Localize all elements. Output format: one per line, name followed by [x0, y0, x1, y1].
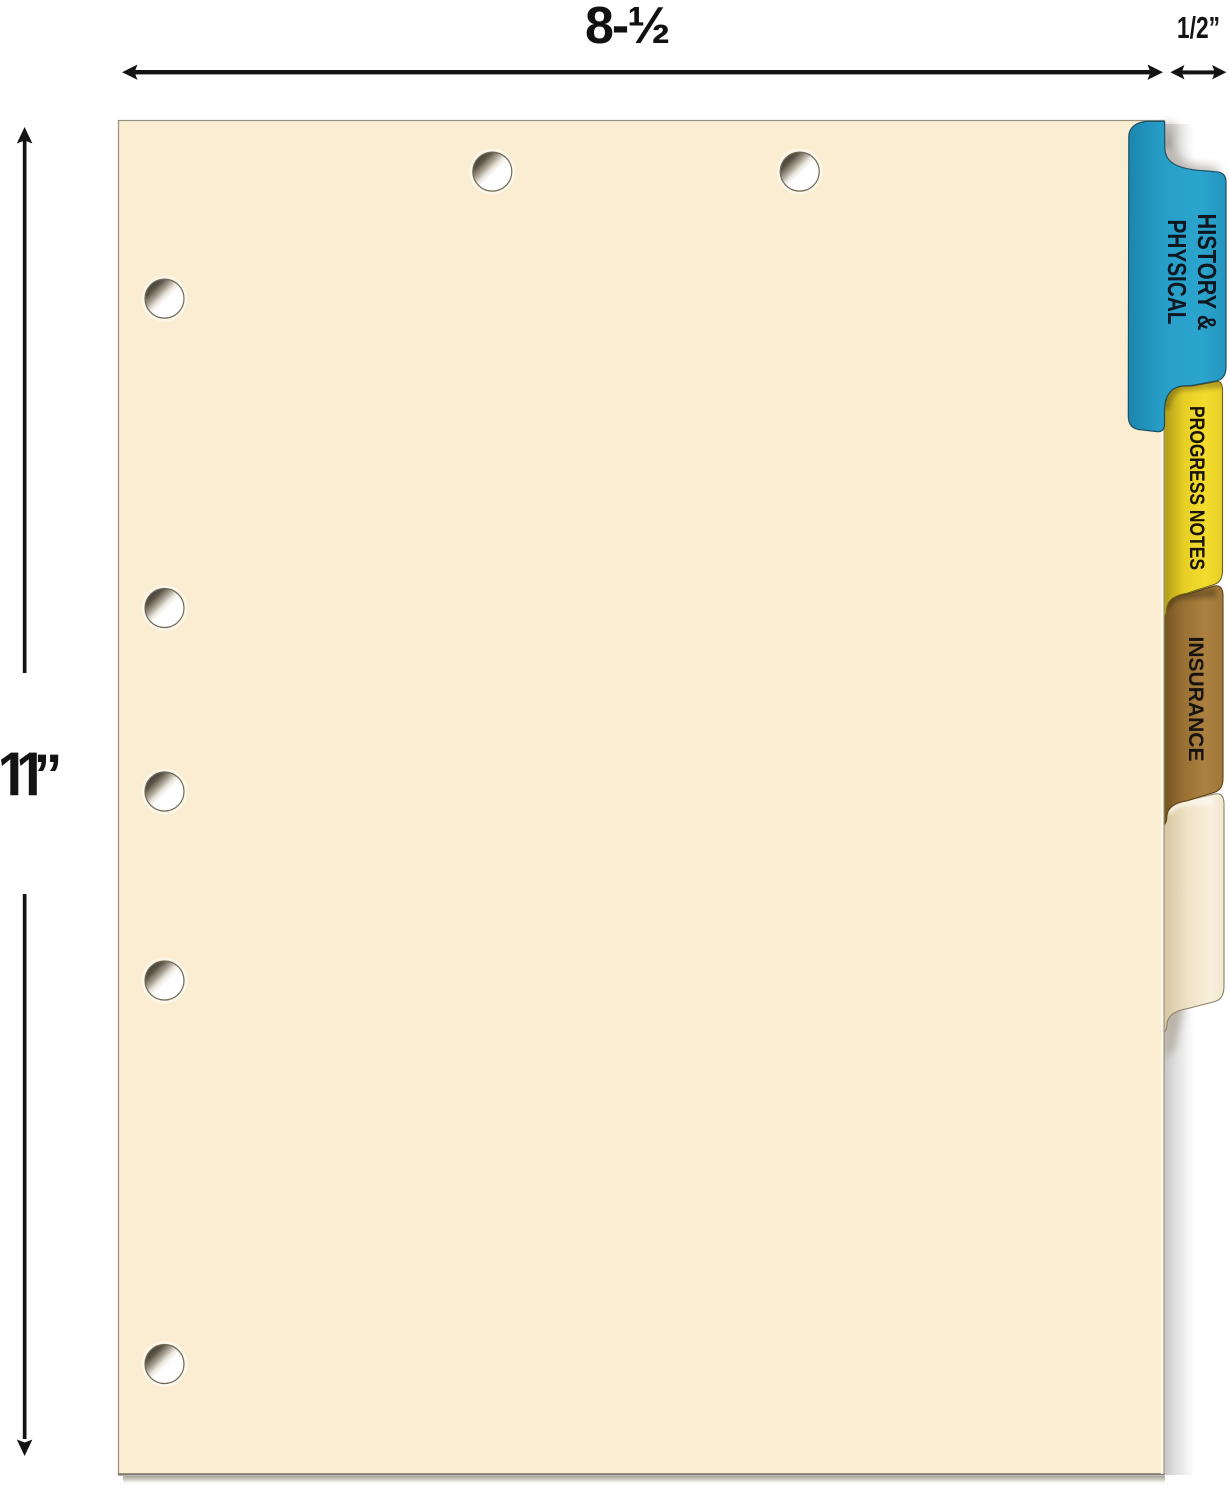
svg-text:PHYSICAL: PHYSICAL — [1162, 220, 1190, 325]
svg-text:INSURANCE: INSURANCE — [1184, 637, 1207, 762]
svg-text:”: ” — [34, 743, 63, 808]
svg-text:8-½: 8-½ — [585, 0, 669, 55]
svg-text:PROGRESS NOTES: PROGRESS NOTES — [1185, 406, 1208, 570]
svg-text:HISTORY &: HISTORY & — [1192, 214, 1220, 331]
svg-text:1/2”: 1/2” — [1177, 10, 1220, 45]
